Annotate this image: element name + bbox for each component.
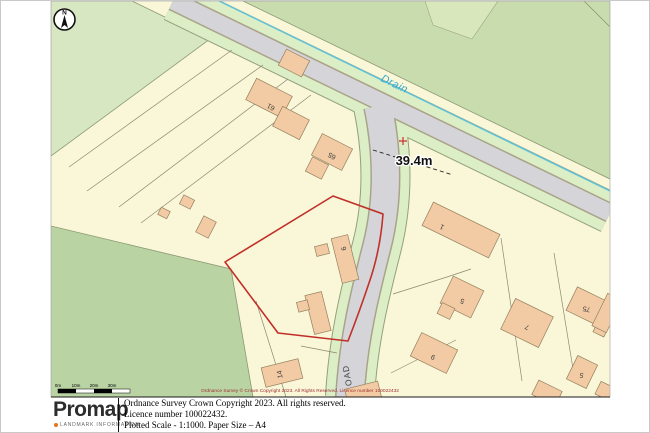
footer-licence-line: Licence number 100022432.	[124, 409, 346, 420]
footer-scale-line: Plotted Scale - 1:1000. Paper Size – A4	[124, 420, 346, 431]
footer-copyright-block: Ordnance Survey Crown Copyright 2023. Al…	[124, 398, 346, 430]
building-label-14: 14	[276, 370, 284, 379]
north-arrow: N	[54, 9, 75, 30]
map-canvas: Drain	[1, 1, 650, 433]
scale-tick-3: 30m	[108, 383, 117, 388]
promap-plan-page: Drain	[0, 0, 650, 433]
promap-logo: Promap	[53, 398, 128, 422]
map-layers: Drain	[51, 1, 622, 406]
map-copyright-text: Ordnance Survey © Crown Copyright 2023. …	[201, 387, 399, 394]
compass-n-label: N	[62, 10, 67, 17]
scale-tick-2: 20m	[90, 383, 99, 388]
footer-copyright-line: Ordnance Survey Crown Copyright 2023. Al…	[124, 398, 346, 409]
scale-tick-1: 10m	[72, 383, 81, 388]
scale-tick-0: 0m	[55, 383, 62, 388]
landmark-logo-icon	[54, 423, 58, 427]
measurement-label: 39.4m	[396, 153, 433, 168]
footer-divider	[118, 398, 119, 433]
